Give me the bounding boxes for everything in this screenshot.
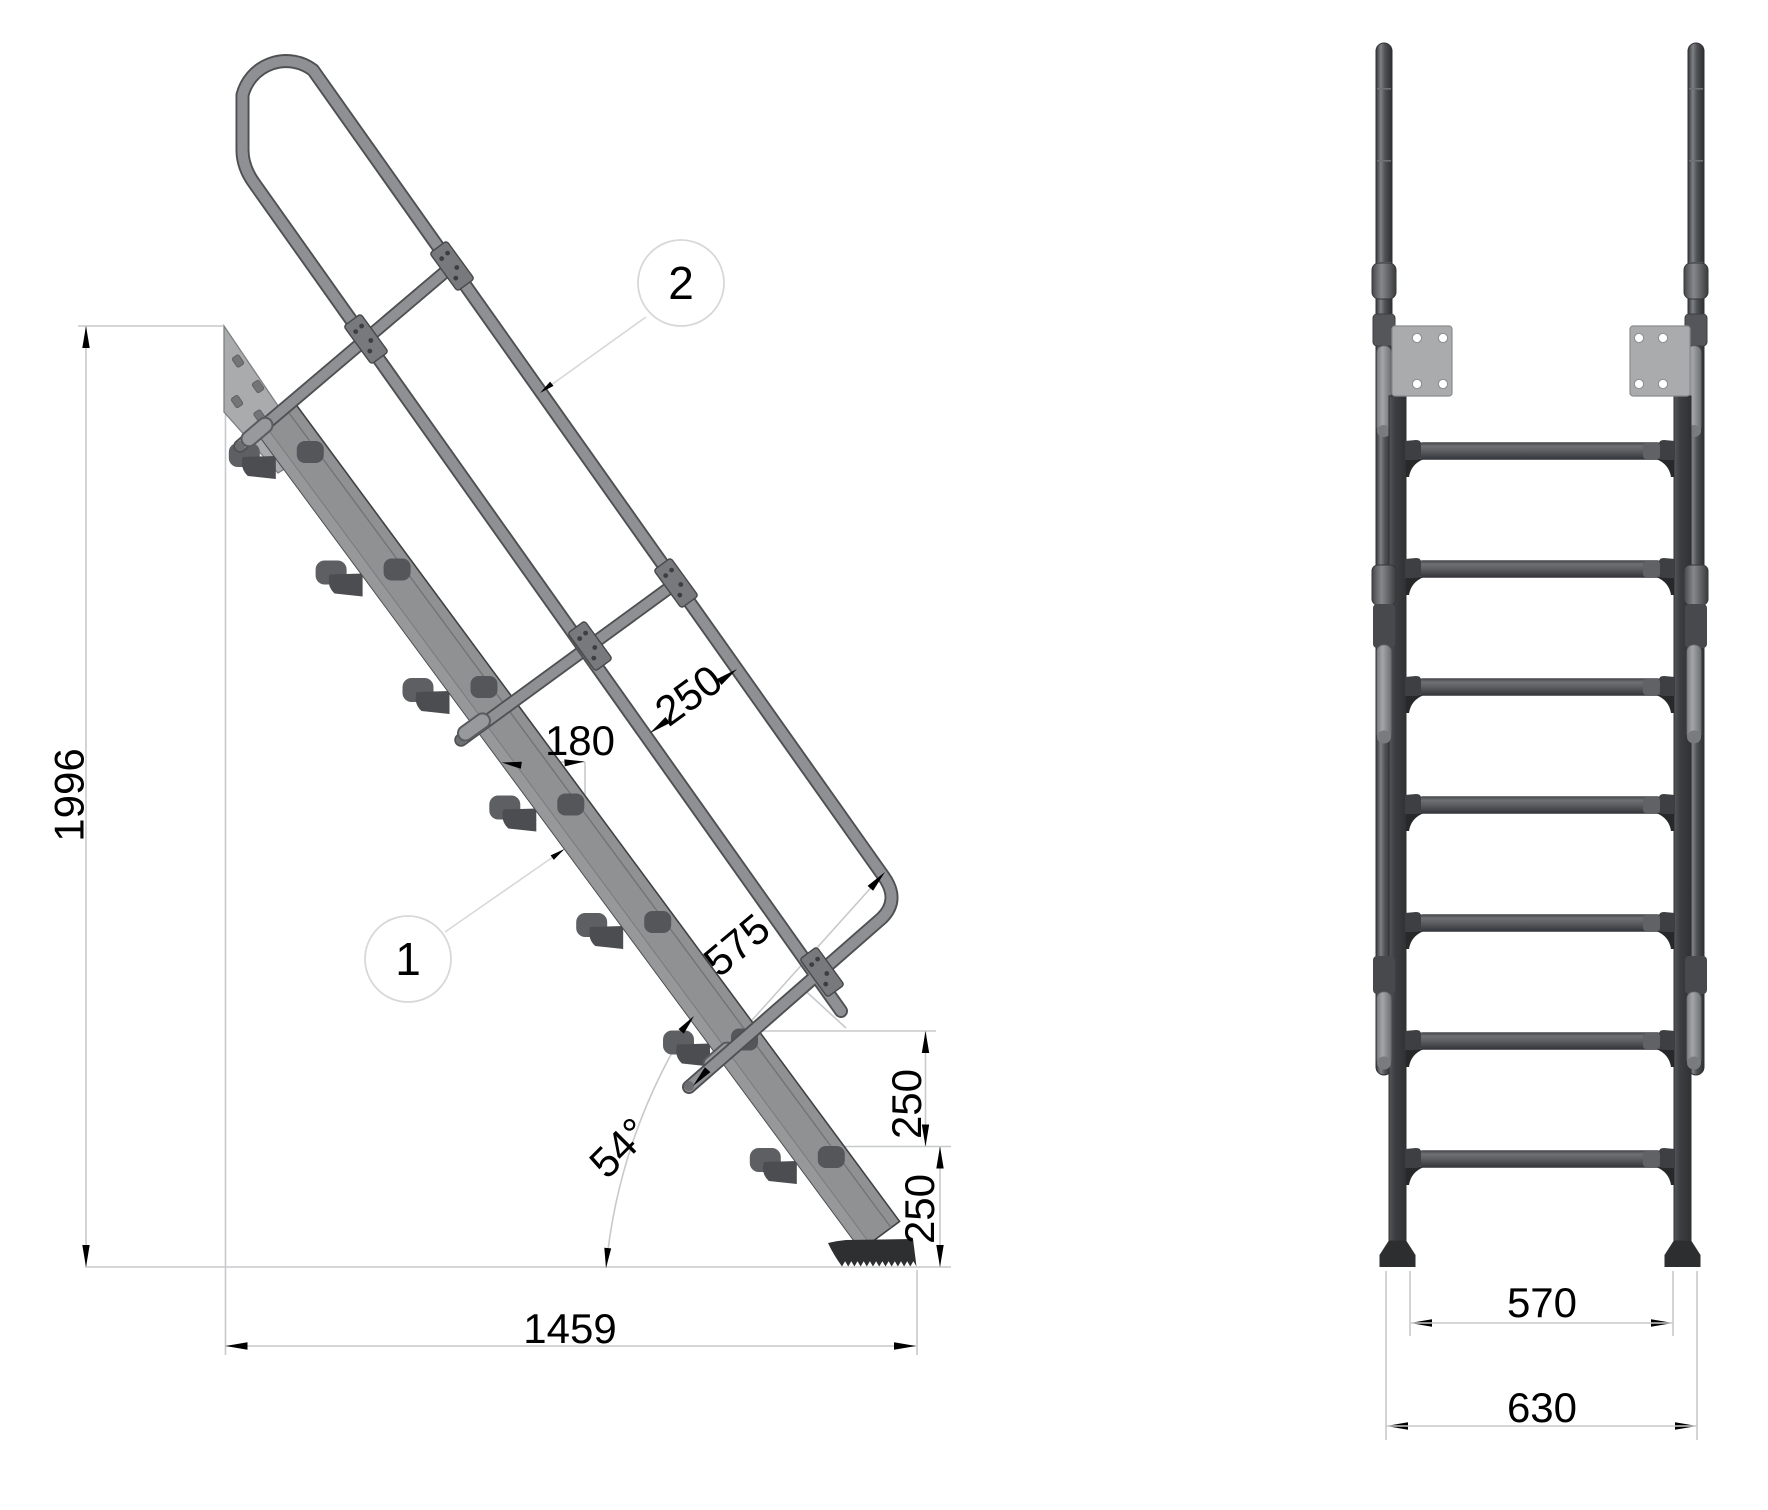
- svg-text:180: 180: [545, 717, 615, 764]
- svg-text:630: 630: [1507, 1384, 1577, 1431]
- svg-text:1996: 1996: [46, 748, 93, 841]
- svg-text:250: 250: [896, 1174, 943, 1244]
- svg-text:250: 250: [883, 1069, 930, 1139]
- svg-text:570: 570: [1507, 1279, 1577, 1326]
- svg-text:1: 1: [395, 933, 421, 985]
- svg-text:2: 2: [668, 257, 694, 309]
- svg-text:1459: 1459: [523, 1305, 616, 1352]
